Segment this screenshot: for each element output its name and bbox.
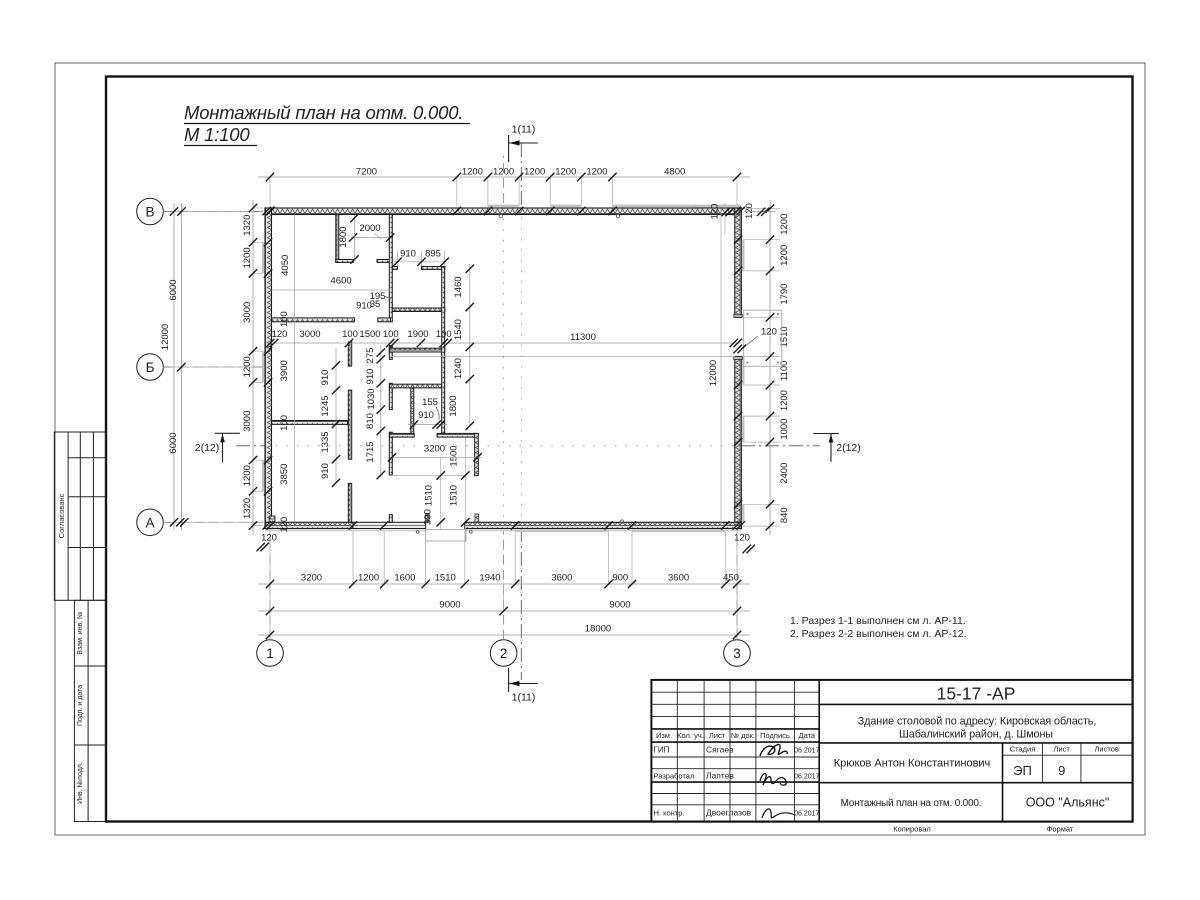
svg-text:3000: 3000	[299, 329, 320, 340]
svg-text:120: 120	[734, 533, 750, 544]
svg-text:1510: 1510	[779, 326, 790, 347]
svg-text:1900: 1900	[407, 329, 428, 340]
svg-text:2400: 2400	[779, 463, 790, 484]
svg-text:35: 35	[370, 299, 381, 310]
svg-text:11300: 11300	[570, 332, 596, 343]
svg-text:1320: 1320	[242, 498, 253, 519]
svg-text:3850: 3850	[279, 464, 290, 485]
svg-text:Подп. и дата: Подп. и дата	[77, 685, 84, 726]
svg-text:ЭП: ЭП	[1013, 763, 1032, 778]
svg-text:12000: 12000	[160, 324, 171, 350]
svg-text:1510: 1510	[424, 485, 435, 506]
svg-text:7200: 7200	[356, 167, 377, 178]
svg-text:900: 900	[612, 573, 628, 584]
svg-text:Монтажный план на отм. 0.000.: Монтажный план на отм. 0.000.	[184, 102, 463, 123]
svg-text:3200: 3200	[424, 444, 445, 455]
svg-text:6000: 6000	[168, 432, 179, 453]
svg-text:1200: 1200	[779, 214, 790, 235]
svg-text:Листов: Листов	[1095, 745, 1119, 754]
svg-text:Дата: Дата	[798, 731, 815, 740]
svg-text:3600: 3600	[551, 573, 572, 584]
svg-text:390: 390	[423, 509, 434, 525]
svg-text:910: 910	[400, 249, 416, 260]
svg-text:3600: 3600	[668, 573, 689, 584]
svg-text:1600: 1600	[394, 573, 415, 584]
svg-text:1245: 1245	[320, 395, 331, 416]
svg-text:4800: 4800	[664, 167, 685, 178]
svg-text:450: 450	[723, 573, 739, 584]
svg-text:1800: 1800	[338, 226, 349, 247]
svg-text:Подпись: Подпись	[760, 731, 790, 740]
svg-text:1100: 1100	[779, 361, 790, 381]
svg-text:3000: 3000	[242, 411, 253, 432]
svg-text:Инв. №подл.: Инв. №подл.	[77, 762, 84, 804]
svg-text:100: 100	[279, 415, 290, 431]
svg-text:9000: 9000	[609, 600, 630, 611]
svg-text:100: 100	[383, 329, 399, 340]
svg-text:910: 910	[365, 369, 376, 385]
svg-text:1320: 1320	[242, 215, 253, 236]
svg-text:Н. контр.: Н. контр.	[654, 809, 685, 818]
svg-text:1200: 1200	[555, 167, 576, 178]
svg-text:1510: 1510	[435, 573, 456, 584]
svg-text:2(12): 2(12)	[836, 442, 861, 454]
svg-text:3: 3	[733, 646, 741, 661]
svg-text:1200: 1200	[779, 390, 790, 411]
svg-text:1200: 1200	[242, 465, 253, 486]
svg-text:1460: 1460	[453, 276, 464, 297]
svg-text:1. Разрез 1-1 выполнен см л. А: 1. Разрез 1-1 выполнен см л. АР-11.	[790, 615, 966, 627]
svg-text:Лист: Лист	[709, 731, 726, 740]
svg-text:Б: Б	[146, 360, 155, 375]
svg-text:А: А	[145, 515, 154, 530]
svg-text:Разработал: Разработал	[654, 772, 695, 781]
svg-text:1200: 1200	[779, 245, 790, 266]
svg-text:1200: 1200	[242, 247, 253, 268]
svg-text:Взам. инв. №: Взам. инв. №	[77, 611, 84, 654]
svg-text:Согласованс: Согласованс	[57, 493, 66, 538]
svg-text:275: 275	[365, 348, 376, 364]
svg-text:06.2017: 06.2017	[794, 774, 819, 781]
svg-text:В: В	[145, 205, 154, 220]
svg-text:1940: 1940	[479, 573, 500, 584]
svg-text:1200: 1200	[358, 573, 379, 584]
svg-text:Лист: Лист	[1054, 745, 1071, 754]
svg-text:ООО "Альянс": ООО "Альянс"	[1026, 796, 1110, 810]
svg-text:4600: 4600	[331, 276, 352, 287]
svg-text:6000: 6000	[168, 279, 179, 300]
svg-text:1510: 1510	[449, 485, 460, 506]
svg-text:1540: 1540	[453, 319, 464, 340]
svg-text:1335: 1335	[320, 431, 331, 452]
svg-text:9: 9	[1058, 763, 1065, 778]
svg-text:12000: 12000	[708, 360, 719, 386]
svg-text:1200: 1200	[493, 167, 514, 178]
svg-text:1200: 1200	[524, 167, 545, 178]
svg-text:155: 155	[422, 397, 438, 408]
svg-text:Изм.: Изм.	[656, 731, 672, 740]
svg-text:1: 1	[266, 646, 274, 661]
svg-text:2. Разрез 2-2 выполнен см л. А: 2. Разрез 2-2 выполнен см л. АР-12.	[790, 628, 967, 640]
svg-text:Стадия: Стадия	[1010, 745, 1036, 754]
svg-text:910: 910	[320, 463, 331, 479]
svg-text:1240: 1240	[453, 358, 464, 379]
svg-text:Сягаев: Сягаев	[706, 745, 734, 755]
svg-text:3900: 3900	[279, 360, 290, 381]
svg-text:1200: 1200	[242, 356, 253, 377]
svg-text:9000: 9000	[439, 600, 460, 611]
svg-text:1800: 1800	[448, 395, 459, 416]
svg-text:120: 120	[744, 203, 755, 219]
svg-text:1030: 1030	[366, 388, 377, 409]
svg-text:100: 100	[342, 329, 358, 340]
svg-text:1500: 1500	[449, 445, 460, 466]
svg-text:2000: 2000	[359, 223, 380, 234]
svg-text:120: 120	[261, 533, 277, 544]
svg-text:Лаптев: Лаптев	[706, 771, 734, 781]
svg-text:1(11): 1(11)	[512, 124, 536, 136]
svg-text:3200: 3200	[301, 573, 322, 584]
svg-text:100: 100	[279, 311, 290, 327]
svg-text:120: 120	[710, 204, 721, 220]
svg-text:№ док.: № док.	[731, 731, 755, 740]
svg-text:2(12): 2(12)	[195, 442, 220, 454]
svg-text:120: 120	[761, 327, 777, 338]
svg-text:15-17 -АР: 15-17 -АР	[937, 684, 1016, 704]
svg-text:1715: 1715	[365, 441, 376, 462]
svg-text:910: 910	[320, 370, 331, 386]
svg-text:1200: 1200	[462, 167, 483, 178]
svg-text:1790: 1790	[779, 284, 790, 305]
svg-text:Двоеглазов: Двоеглазов	[706, 808, 752, 818]
svg-text:910: 910	[418, 410, 434, 421]
svg-text:2: 2	[500, 646, 508, 661]
svg-text:Формат: Формат	[1047, 825, 1074, 834]
svg-text:1200: 1200	[586, 167, 607, 178]
svg-text:ГИП: ГИП	[654, 746, 670, 755]
svg-text:Здание столовой по адресу: Кир: Здание столовой по адресу: Кировская обл…	[858, 716, 1097, 728]
svg-text:100: 100	[436, 329, 452, 340]
svg-text:1(11): 1(11)	[512, 692, 536, 704]
svg-text:Копировал: Копировал	[893, 825, 931, 834]
svg-text:Монтажный план на отм. 0.000.: Монтажный план на отм. 0.000.	[841, 798, 982, 809]
svg-text:3000: 3000	[242, 302, 253, 323]
svg-text:18000: 18000	[585, 624, 611, 635]
svg-text:1500: 1500	[359, 329, 380, 340]
svg-text:120: 120	[279, 517, 290, 533]
svg-text:Крюков Антон Константинович: Крюков Антон Константинович	[834, 758, 991, 770]
svg-text:895: 895	[425, 249, 441, 260]
svg-text:Шабалинский район, д. Шмоны: Шабалинский район, д. Шмоны	[899, 729, 1053, 741]
svg-text:М 1:100: М 1:100	[184, 124, 250, 145]
svg-text:Кол. уч.: Кол. уч.	[677, 731, 704, 740]
svg-text:06.2017: 06.2017	[794, 811, 819, 818]
svg-text:1000: 1000	[779, 419, 790, 440]
svg-text:4050: 4050	[280, 255, 291, 276]
svg-text:840: 840	[779, 507, 790, 523]
svg-text:06.2017: 06.2017	[794, 748, 819, 755]
svg-text:810: 810	[365, 413, 376, 429]
